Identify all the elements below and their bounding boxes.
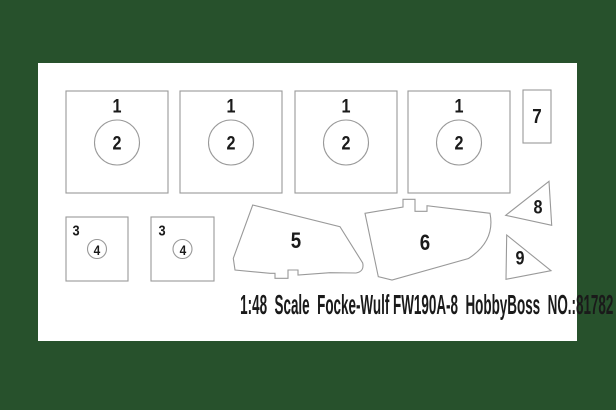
part-number-label: 2 — [342, 134, 351, 153]
part-number-label: 7 — [532, 107, 541, 127]
sheet-caption: 1:48 Scale Focke-Wulf FW190A-8 HobbyBoss… — [38, 291, 577, 324]
green-background: 1 1 1 1 2 2 2 2 7 3 3 4 4 5 6 8 9 1:48 S… — [0, 0, 616, 410]
part-number-label: 8 — [534, 199, 543, 218]
mask-sheet-panel: 1 1 1 1 2 2 2 2 7 3 3 4 4 5 6 8 9 1:48 S… — [38, 63, 577, 341]
part-number-label: 1 — [455, 98, 464, 117]
mask-triangle-upper-8 — [506, 181, 552, 225]
part-number-label: 1 — [342, 98, 351, 117]
part-number-label: 3 — [72, 224, 79, 239]
part-number-label: 3 — [158, 224, 165, 239]
part-number-label: 2 — [455, 134, 464, 153]
part-number-label: 1 — [227, 98, 236, 117]
mask-triangle-lower-9 — [506, 235, 551, 279]
sheet-caption-text: 1:48 Scale Focke-Wulf FW190A-8 HobbyBoss… — [240, 291, 613, 319]
part-number-label: 2 — [227, 134, 236, 153]
part-number-label: 2 — [113, 134, 122, 153]
part-number-label: 4 — [94, 243, 101, 257]
part-number-label: 4 — [179, 243, 186, 257]
part-number-label: 6 — [420, 232, 430, 254]
part-number-label: 9 — [516, 250, 525, 269]
part-number-label: 1 — [113, 98, 122, 117]
part-number-label: 5 — [291, 230, 301, 252]
